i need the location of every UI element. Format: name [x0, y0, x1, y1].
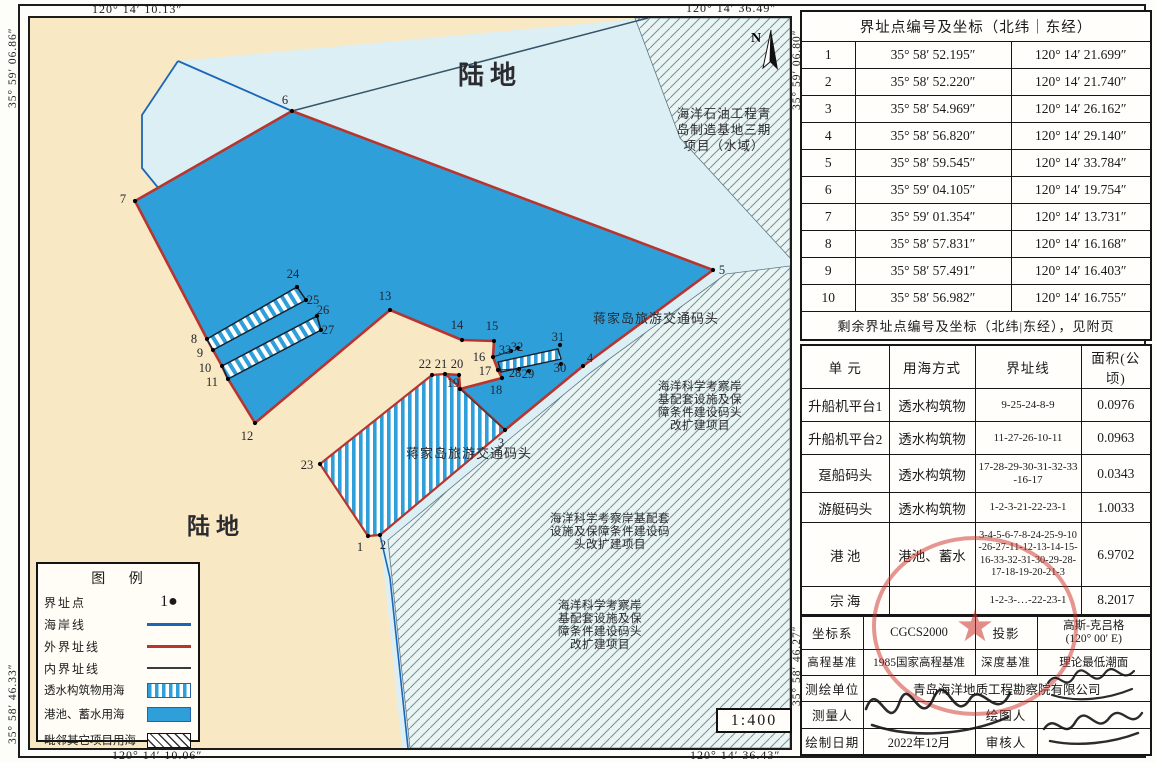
table-row: 宗 海1-2-3-…-22-23-18.2017	[801, 587, 1151, 615]
area-value: 1.0033	[1081, 493, 1151, 523]
label-oil-project-3: 项目（水域）	[683, 139, 764, 153]
use-method: 港池、蓄水	[889, 523, 975, 587]
table-row: 835° 58′ 57.831″120° 14′ 16.168″	[801, 231, 1151, 258]
label-science-mid-1: 海洋科学考察岸基配套	[550, 511, 670, 525]
use-method: 透水构筑物	[889, 422, 975, 455]
scale-indicator: 1:400	[716, 708, 792, 733]
label-jiajia-wharf-1: 蒋家岛旅游交通码头	[593, 311, 719, 326]
boundary-coordinates-table: 界址点编号及坐标（北纬｜东经） 135° 58′ 52.195″120° 14′…	[800, 10, 1152, 341]
sea-use-units-table: 单 元 用海方式 界址线 面积(公顷) 升船机平台1透水构筑物9-25-24-8…	[800, 344, 1152, 616]
label-oil-project-2: 岛制造基地三期	[677, 122, 772, 137]
permeable-structure-symbol	[147, 683, 191, 698]
map-area: 陆地 陆地 海洋石油工程青 岛制造基地三期 项目（水域） 蒋家岛旅游交通码头 蒋…	[28, 16, 792, 750]
boundary-point-label-5: 5	[719, 263, 725, 277]
boundary-point-12	[253, 421, 257, 425]
label-survey-agency: 测绘单位	[801, 675, 863, 701]
latitude: 35° 59′ 04.105″	[855, 177, 1011, 204]
label-jiajia-wharf-2: 蒋家岛旅游交通码头	[406, 446, 532, 461]
use-method: 透水构筑物	[889, 455, 975, 493]
use-method: 透水构筑物	[889, 389, 975, 422]
north-arrow-letter: N	[751, 31, 761, 46]
boundary-point-21	[443, 372, 447, 376]
legend-label-boundary-point: 界址点	[44, 594, 86, 611]
boundary-point-label-22: 22	[419, 357, 432, 371]
projection-line1: 高斯-克吕格	[1039, 620, 1150, 633]
boundary-point-1	[366, 534, 370, 538]
unit-name: 升船机平台2	[801, 422, 889, 455]
label-land-bottom: 陆地	[187, 514, 245, 539]
boundary-point-label-2: 2	[380, 538, 386, 552]
boundary-point-label-13: 13	[379, 289, 392, 303]
legend: 图 例 界址点1● 海岸线 外界址线 内界址线 透水构筑物用海 港池、蓄水用海 …	[36, 562, 200, 742]
boundary-point-label-28: 28	[509, 366, 522, 380]
boundary-point-2	[378, 533, 382, 537]
boundary-point-18	[500, 376, 504, 380]
drawing-date-value: 2022年12月	[863, 728, 975, 755]
label-oil-project-1: 海洋石油工程青	[677, 106, 772, 121]
table-row: 435° 58′ 56.820″120° 14′ 29.140″	[801, 123, 1151, 150]
table-row: 135° 58′ 52.195″120° 14′ 21.699″	[801, 42, 1151, 69]
coord-label-top-left: 120° 14′ 10.13″	[92, 2, 182, 17]
boundary-point-label-12: 12	[241, 429, 254, 443]
coord-label-top-right: 120° 14′ 36.49″	[686, 1, 776, 16]
boundary-line: 3-4-5-6-7-8-24-25-9-10-26-27-11-12-13-14…	[975, 523, 1081, 587]
projection-value: 高斯-克吕格 (120° 00′ E)	[1037, 616, 1151, 649]
latitude: 35° 58′ 52.195″	[855, 42, 1011, 69]
height-datum-value: 1985国家高程基准	[863, 649, 975, 675]
latitude: 35° 58′ 57.491″	[855, 258, 1011, 285]
boundary-point-16	[491, 355, 495, 359]
point-id: 7	[801, 204, 855, 231]
header-boundary-line: 界址线	[975, 345, 1081, 389]
boundary-line: 11-27-26-10-11	[975, 422, 1081, 455]
boundary-point-17	[496, 368, 500, 372]
coord-label-left-bottom: 35° 58′ 46.33″	[7, 663, 19, 744]
label-depth-datum: 深度基准	[975, 649, 1037, 675]
unit-name: 趸船码头	[801, 455, 889, 493]
label-coordinate-system: 坐标系	[801, 616, 863, 649]
surveyor-signature-cell	[863, 701, 975, 728]
table-row: 335° 58′ 54.969″120° 14′ 26.162″	[801, 96, 1151, 123]
label-science-right-2: 基配套设施及保	[658, 392, 742, 406]
boundary-point-symbol: 1●	[146, 593, 192, 611]
harbor-basin-symbol	[147, 707, 191, 722]
boundary-point-label-15: 15	[486, 319, 499, 333]
longitude: 120° 14′ 26.162″	[1011, 96, 1151, 123]
latitude: 35° 58′ 54.969″	[855, 96, 1011, 123]
boundary-line: 9-25-24-8-9	[975, 389, 1081, 422]
table-row: 535° 58′ 59.545″120° 14′ 33.784″	[801, 150, 1151, 177]
label-land-top: 陆地	[458, 60, 522, 90]
boundary-point-label-9: 9	[197, 346, 203, 360]
table-row: 港 池港池、蓄水3-4-5-6-7-8-24-25-9-10-26-27-11-…	[801, 523, 1151, 587]
area-value: 8.2017	[1081, 587, 1151, 615]
boundary-point-label-29: 29	[522, 367, 535, 381]
boundary-point-label-7: 7	[120, 192, 126, 206]
zonghai-map-sheet: { "frame": { "coords": { "top_left": "12…	[0, 0, 1156, 763]
label-science-bottom-4: 改扩建项目	[570, 637, 630, 651]
boundary-point-6	[290, 109, 294, 113]
boundary-point-label-27: 27	[322, 323, 335, 337]
boundary-point-label-14: 14	[451, 318, 464, 332]
boundary-point-22	[430, 373, 434, 377]
longitude: 120° 14′ 21.699″	[1011, 42, 1151, 69]
unit-name: 游艇码头	[801, 493, 889, 523]
label-reviewer: 审核人	[975, 728, 1037, 755]
point-id: 2	[801, 69, 855, 96]
survey-info-table: 坐标系 CGCS2000 投影 高斯-克吕格 (120° 00′ E) 高程基准…	[800, 615, 1152, 756]
longitude: 120° 14′ 16.168″	[1011, 231, 1151, 258]
longitude: 120° 14′ 16.755″	[1011, 285, 1151, 312]
outer-boundary-symbol	[147, 645, 191, 648]
legend-label-outer-boundary: 外界址线	[44, 638, 100, 655]
coordinate-system-value: CGCS2000	[863, 616, 975, 649]
boundary-point-24	[295, 285, 299, 289]
label-science-right-3: 障条件建设码头	[658, 405, 742, 419]
unit-name: 宗 海	[801, 587, 889, 615]
table-row: 935° 58′ 57.491″120° 14′ 16.403″	[801, 258, 1151, 285]
boundary-point-23	[318, 462, 322, 466]
longitude: 120° 14′ 29.140″	[1011, 123, 1151, 150]
boundary-point-label-10: 10	[199, 361, 212, 375]
boundary-point-label-1: 1	[357, 540, 363, 554]
drafter-signature-cell	[1037, 701, 1151, 728]
label-drafter: 绘图人	[975, 701, 1037, 728]
boundary-point-label-24: 24	[287, 267, 300, 281]
table-row: 升船机平台1透水构筑物9-25-24-8-90.0976	[801, 389, 1151, 422]
point-id: 4	[801, 123, 855, 150]
legend-label-inner-boundary: 内界址线	[44, 660, 100, 677]
boundary-point-label-19: 19	[447, 376, 460, 390]
boundary-point-label-21: 21	[435, 357, 448, 371]
boundary-point-label-3: 3	[498, 436, 504, 450]
boundary-point-7	[133, 199, 137, 203]
coord-label-bottom-right: 120° 14′ 36.43″	[690, 748, 780, 763]
boundary-line: 1-2-3-…-22-23-1	[975, 587, 1081, 615]
boundary-point-label-20: 20	[451, 357, 464, 371]
boundary-point-15	[492, 339, 496, 343]
label-science-bottom-3: 障条件建设码头	[558, 624, 642, 638]
table-row: 趸船码头透水构筑物17-28-29-30-31-32-33-16-170.034…	[801, 455, 1151, 493]
boundary-point-label-23: 23	[301, 458, 314, 472]
point-id: 9	[801, 258, 855, 285]
header-use-method: 用海方式	[889, 345, 975, 389]
label-surveyor: 测量人	[801, 701, 863, 728]
header-unit: 单 元	[801, 345, 889, 389]
header-area: 面积(公顷)	[1081, 345, 1151, 389]
label-science-right-4: 改扩建项目	[670, 418, 730, 432]
boundary-point-11	[226, 377, 230, 381]
boundary-point-label-8: 8	[191, 332, 197, 346]
legend-label-adjacent: 毗邻其它项目用海	[44, 732, 136, 748]
boundary-point-9	[211, 348, 215, 352]
use-method: 透水构筑物	[889, 493, 975, 523]
point-id: 6	[801, 177, 855, 204]
longitude: 120° 14′ 21.740″	[1011, 69, 1151, 96]
label-science-bottom-2: 基配套设施及保	[558, 611, 642, 625]
label-science-bottom-1: 海洋科学考察岸	[558, 598, 642, 612]
area-value: 0.0343	[1081, 455, 1151, 493]
table-row: 游艇码头透水构筑物1-2-3-21-22-23-11.0033	[801, 493, 1151, 523]
unit-name: 升船机平台1	[801, 389, 889, 422]
longitude: 120° 14′ 33.784″	[1011, 150, 1151, 177]
label-science-mid-2: 设施及保障条件建设码	[550, 524, 670, 538]
boundary-point-3	[503, 428, 507, 432]
latitude: 35° 58′ 56.982″	[855, 285, 1011, 312]
boundary-point-14	[460, 338, 464, 342]
boundary-point-5	[711, 268, 715, 272]
boundary-point-label-6: 6	[282, 93, 288, 107]
point-id: 1	[801, 42, 855, 69]
label-projection: 投影	[975, 616, 1037, 649]
boundary-point-4	[581, 364, 585, 368]
longitude: 120° 14′ 16.403″	[1011, 258, 1151, 285]
boundary-point-label-26: 26	[317, 303, 330, 317]
table-row: 235° 58′ 52.220″120° 14′ 21.740″	[801, 69, 1151, 96]
unit-name: 港 池	[801, 523, 889, 587]
adjacent-project-symbol	[147, 733, 191, 748]
longitude: 120° 14′ 13.731″	[1011, 204, 1151, 231]
boundary-point-8	[205, 337, 209, 341]
use-method	[889, 587, 975, 615]
table-row: 735° 59′ 01.354″120° 14′ 13.731″	[801, 204, 1151, 231]
label-drawing-date: 绘制日期	[801, 728, 863, 755]
longitude: 120° 14′ 19.754″	[1011, 177, 1151, 204]
latitude: 35° 59′ 01.354″	[855, 204, 1011, 231]
table-row: 1035° 58′ 56.982″120° 14′ 16.755″	[801, 285, 1151, 312]
boundary-point-label-16: 16	[473, 350, 486, 364]
survey-agency-value: 青岛海洋地质工程勘察院有限公司	[863, 675, 1151, 701]
latitude: 35° 58′ 52.220″	[855, 69, 1011, 96]
boundary-point-13	[388, 308, 392, 312]
reviewer-signature-cell	[1037, 728, 1151, 755]
boundary-point-label-4: 4	[587, 351, 594, 365]
latitude: 35° 58′ 56.820″	[855, 123, 1011, 150]
latitude: 35° 58′ 57.831″	[855, 231, 1011, 258]
legend-label-permeable: 透水构筑物用海	[44, 682, 125, 698]
label-height-datum: 高程基准	[801, 649, 863, 675]
boundary-point-label-17: 17	[479, 364, 492, 378]
coord-label-left-top: 35° 59′ 06.86″	[7, 27, 19, 108]
table-row: 升船机平台2透水构筑物11-27-26-10-110.0963	[801, 422, 1151, 455]
boundary-point-label-11: 11	[206, 375, 218, 389]
inner-boundary-symbol	[147, 667, 191, 669]
boundary-point-20	[457, 373, 461, 377]
label-science-right-1: 海洋科学考察岸	[658, 379, 742, 393]
legend-title: 图 例	[52, 568, 192, 588]
boundary-line: 1-2-3-21-22-23-1	[975, 493, 1081, 523]
legend-label-harbor: 港池、蓄水用海	[44, 706, 125, 722]
table-row: 635° 59′ 04.105″120° 14′ 19.754″	[801, 177, 1151, 204]
coord-table-footer: 剩余界址点编号及坐标（北纬|东经），见附页	[801, 312, 1151, 341]
projection-line2: (120° 00′ E)	[1039, 633, 1150, 646]
boundary-point-label-18: 18	[490, 383, 503, 397]
area-value: 6.9702	[1081, 523, 1151, 587]
boundary-point-label-33: 33	[499, 343, 512, 357]
point-id: 5	[801, 150, 855, 177]
depth-datum-value: 理论最低潮面	[1037, 649, 1151, 675]
label-science-mid-3: 头改扩建项目	[574, 537, 646, 551]
boundary-point-label-30: 30	[554, 361, 567, 375]
coord-table-title: 界址点编号及坐标（北纬｜东经）	[801, 11, 1151, 42]
area-value: 0.0976	[1081, 389, 1151, 422]
area-value: 0.0963	[1081, 422, 1151, 455]
latitude: 35° 58′ 59.545″	[855, 150, 1011, 177]
coastline-symbol	[147, 623, 191, 626]
point-id: 10	[801, 285, 855, 312]
boundary-line: 17-28-29-30-31-32-33-16-17	[975, 455, 1081, 493]
boundary-point-10	[220, 364, 224, 368]
legend-label-coastline: 海岸线	[44, 616, 86, 633]
point-id: 8	[801, 231, 855, 258]
point-id: 3	[801, 96, 855, 123]
boundary-point-label-31: 31	[552, 330, 565, 344]
